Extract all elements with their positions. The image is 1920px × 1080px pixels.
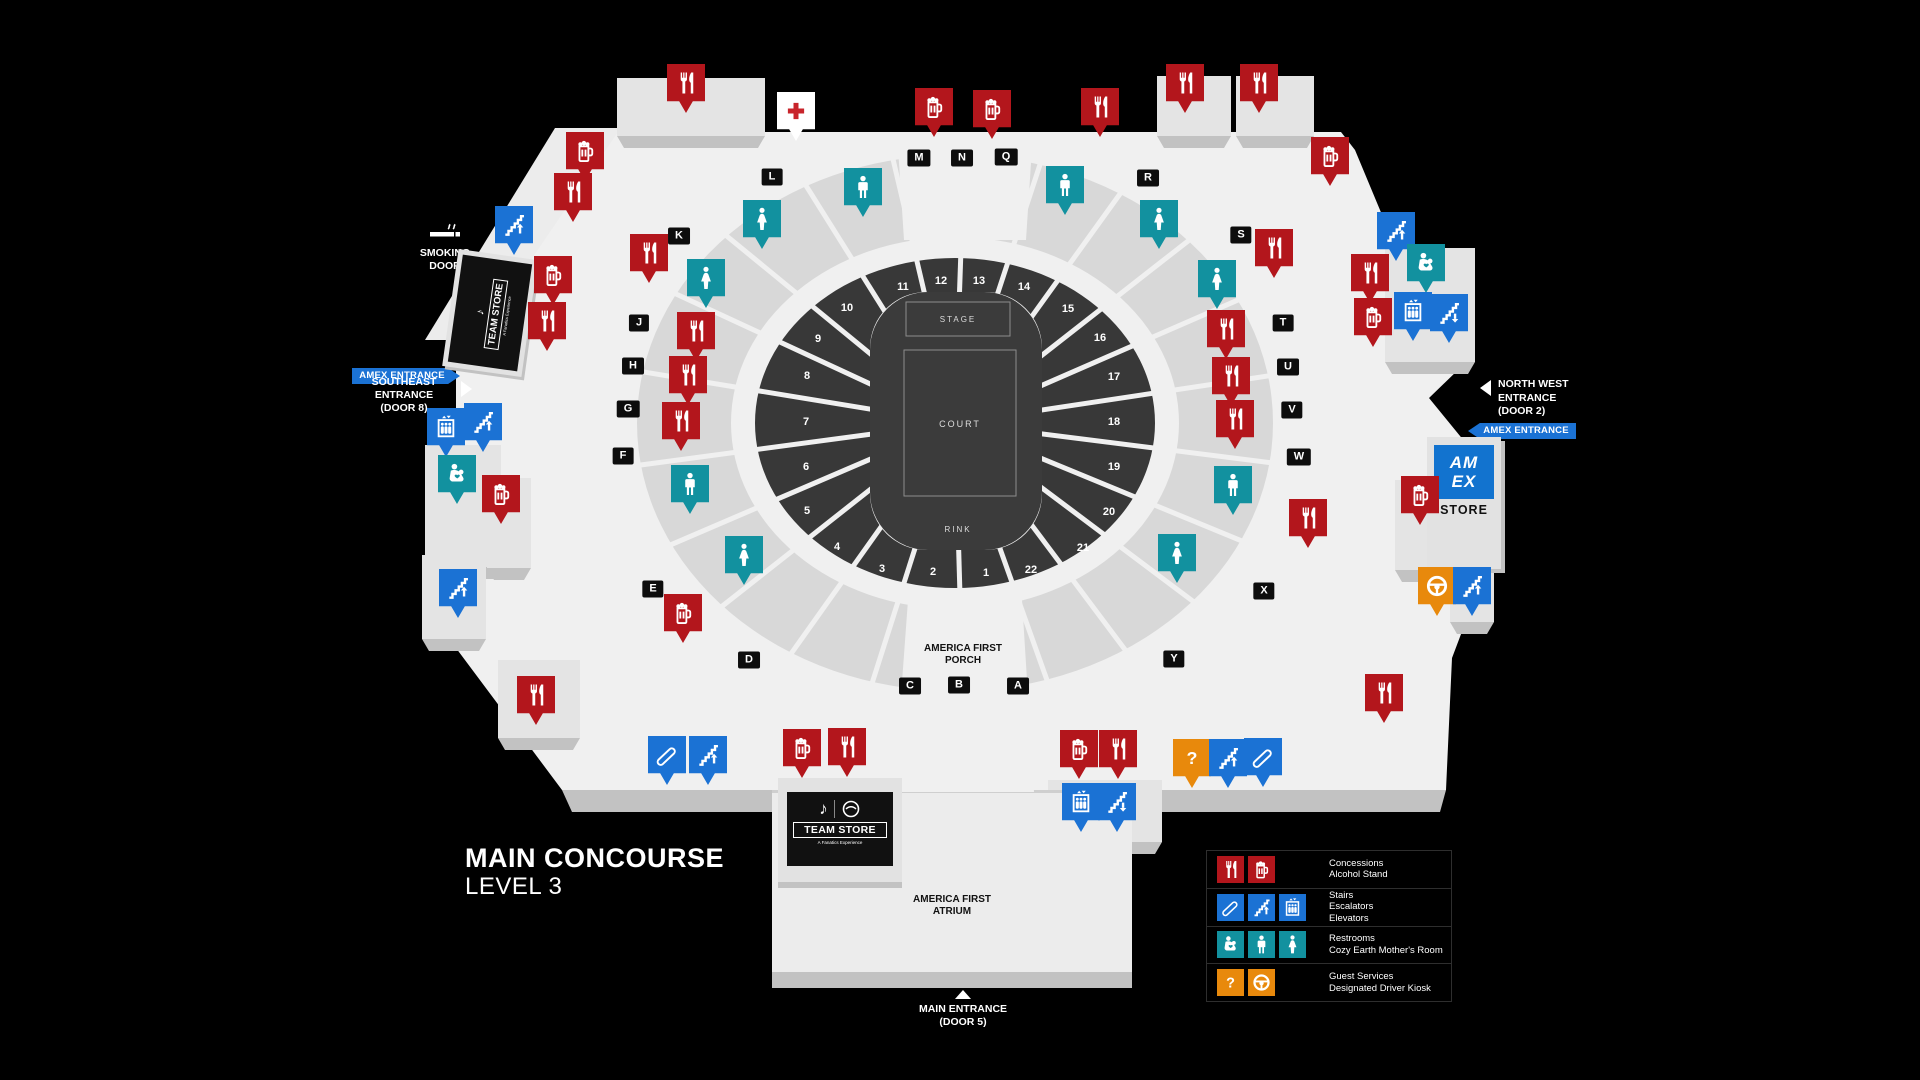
elevator-icon — [1400, 298, 1426, 324]
question-pin: ? — [1173, 739, 1211, 788]
beer-pin — [1354, 298, 1392, 347]
concourse-letter-A: A — [1007, 678, 1029, 695]
legend-row: ConcessionsAlcohol Stand — [1207, 851, 1451, 888]
fork-pin — [667, 64, 705, 113]
man-pin — [844, 168, 882, 217]
northwest-line2: ENTRANCE — [1498, 392, 1569, 406]
elevator-pin — [1062, 783, 1100, 832]
stairs-up-icon — [470, 409, 496, 435]
america-first-porch-label: AMERICA FIRST PORCH — [924, 643, 1002, 667]
page-title: MAIN CONCOURSE LEVEL 3 — [465, 843, 724, 900]
team-store-south: ♪ TEAM STORE A Fanatics Experience — [778, 778, 902, 882]
title-line2: LEVEL 3 — [465, 873, 724, 900]
beer-pin — [1311, 137, 1349, 186]
driver-pin — [1418, 567, 1456, 616]
fork-pin — [828, 728, 866, 777]
jazz-note-icon: ♪ — [819, 799, 828, 819]
fork-icon — [1105, 736, 1131, 762]
legend-row: RestroomsCozy Earth Mother's Room — [1207, 926, 1451, 964]
stairs-down-icon — [1436, 300, 1462, 326]
question-icon: ? — [1179, 745, 1205, 771]
concourse-letter-W: W — [1287, 449, 1311, 466]
fork-icon — [636, 240, 662, 266]
woman-pin — [743, 200, 781, 249]
fork-pin — [1351, 254, 1389, 303]
concourse-letter-D: D — [738, 652, 760, 669]
southeast-line2: ENTRANCE — [352, 389, 456, 402]
elevator-pin — [427, 408, 465, 457]
fork-pin — [1255, 229, 1293, 278]
stairs-up-pin — [495, 206, 533, 255]
fork-icon — [673, 70, 699, 96]
stairs-up-pin — [1209, 739, 1247, 788]
title-line1: MAIN CONCOURSE — [465, 843, 724, 873]
woman-icon — [749, 206, 775, 232]
beer-pin — [915, 88, 953, 137]
northwest-entrance: NORTH WEST ENTRANCE (DOOR 2) — [1480, 378, 1569, 419]
fork-pin — [1289, 499, 1327, 548]
stairs-up-icon — [1459, 573, 1485, 599]
man-pin — [1214, 466, 1252, 515]
fork-pin — [1207, 310, 1245, 359]
team-store-name: TEAM STORE — [793, 822, 887, 838]
beer-icon — [1066, 736, 1092, 762]
woman-pin — [687, 259, 725, 308]
beer-icon — [1360, 304, 1386, 330]
elevator-pin — [1394, 292, 1432, 341]
fork-icon — [1218, 363, 1244, 389]
stairs-up-pin — [464, 403, 502, 452]
map-overlay: SMOKING DOOR AMEX ENTRANCE SOUTHEAST ENT… — [0, 0, 1920, 1080]
mother-icon — [1217, 931, 1244, 958]
stairs-up-icon — [1248, 894, 1275, 921]
fork-icon — [1172, 70, 1198, 96]
concourse-letter-Q: Q — [995, 149, 1018, 166]
team-store-north: ♪ TEAM STORE A Fanatics Experience — [442, 249, 538, 377]
concourse-letter-E: E — [642, 581, 663, 598]
concourse-letter-Y: Y — [1163, 651, 1184, 668]
main-entrance-line2: (DOOR 5) — [905, 1016, 1021, 1029]
woman-icon — [1146, 206, 1172, 232]
stairs-up-icon — [1215, 745, 1241, 771]
elevator-icon — [433, 414, 459, 440]
cigarette-icon — [428, 218, 462, 242]
firstaid-icon — [783, 98, 809, 124]
fork-icon — [683, 318, 709, 344]
woman-pin — [1198, 260, 1236, 309]
fork-pin — [528, 302, 566, 351]
fork-pin — [677, 312, 715, 361]
stairs-up-icon — [445, 575, 471, 601]
woman-icon — [693, 265, 719, 291]
fork-pin — [662, 402, 700, 451]
beer-pin — [482, 475, 520, 524]
fork-icon — [1213, 316, 1239, 342]
fork-pin — [517, 676, 555, 725]
beer-icon — [921, 94, 947, 120]
fork-icon — [1087, 94, 1113, 120]
concourse-letter-C: C — [899, 678, 921, 695]
beer-icon — [1317, 143, 1343, 169]
legend-row: StairsEscalatorsElevators — [1207, 888, 1451, 926]
elevator-icon — [1279, 894, 1306, 921]
mother-icon — [444, 461, 470, 487]
main-entrance-line1: MAIN ENTRANCE — [905, 1003, 1021, 1016]
fork-icon — [1371, 680, 1397, 706]
beer-pin — [1060, 730, 1098, 779]
fork-icon — [1295, 505, 1321, 531]
woman-icon — [1279, 931, 1306, 958]
fork-pin — [630, 234, 668, 283]
concourse-letter-U: U — [1277, 359, 1299, 376]
driver-icon — [1248, 969, 1275, 996]
america-first-atrium-label: AMERICA FIRST ATRIUM — [913, 894, 991, 918]
concourse-letter-R: R — [1137, 170, 1159, 187]
fork-icon — [1246, 70, 1272, 96]
escalator-pin — [648, 736, 686, 785]
man-pin — [671, 465, 709, 514]
fork-pin — [1212, 357, 1250, 406]
beer-icon — [1407, 482, 1433, 508]
concourse-letter-X: X — [1253, 583, 1274, 600]
escalator-pin — [1244, 738, 1282, 787]
fork-pin — [1216, 400, 1254, 449]
escalator-icon — [1217, 894, 1244, 921]
concourse-letter-L: L — [762, 169, 783, 186]
man-icon — [850, 174, 876, 200]
concourse-letter-F: F — [613, 448, 634, 465]
fork-pin — [1365, 674, 1403, 723]
woman-pin — [725, 536, 763, 585]
beer-pin — [783, 729, 821, 778]
concourse-letter-K: K — [668, 228, 690, 245]
team-emblem-icon — [841, 799, 861, 819]
main-entrance-label: MAIN ENTRANCE (DOOR 5) — [905, 990, 1021, 1029]
northwest-line3: (DOOR 2) — [1498, 405, 1569, 419]
fork-icon — [1222, 406, 1248, 432]
woman-pin — [1158, 534, 1196, 583]
concourse-letter-S: S — [1230, 227, 1251, 244]
southeast-entrance: AMEX ENTRANCE SOUTHEAST ENTRANCE (DOOR 8… — [352, 368, 456, 415]
team-store-sub: A Fanatics Experience — [793, 840, 887, 845]
svg-text:?: ? — [1226, 975, 1235, 991]
fork-pin — [554, 173, 592, 222]
legend-row: ?Guest ServicesDesignated Driver Kiosk — [1207, 963, 1451, 1001]
beer-pin — [534, 256, 572, 305]
fork-icon — [560, 179, 586, 205]
amex-logo: AM EX — [1434, 445, 1494, 499]
man-icon — [1248, 931, 1275, 958]
southeast-line1: SOUTHEAST — [352, 376, 456, 389]
beer-icon — [540, 262, 566, 288]
stairs-up-pin — [689, 736, 727, 785]
concourse-letter-B: B — [948, 677, 970, 694]
legend-row-text: ConcessionsAlcohol Stand — [1329, 858, 1388, 881]
southeast-arrow-icon — [461, 381, 472, 397]
fork-pin — [1240, 64, 1278, 113]
jazz-note-icon: ♪ — [474, 308, 487, 315]
question-icon: ? — [1217, 969, 1244, 996]
man-icon — [1052, 172, 1078, 198]
map-legend: ConcessionsAlcohol StandStairsEscalators… — [1206, 850, 1452, 1002]
mother-pin — [438, 455, 476, 504]
stairs-up-icon — [1383, 218, 1409, 244]
man-icon — [1220, 472, 1246, 498]
concourse-letter-M: M — [907, 150, 930, 167]
driver-icon — [1424, 573, 1450, 599]
woman-icon — [1204, 266, 1230, 292]
fork-icon — [1357, 260, 1383, 286]
stairs-up-icon — [501, 212, 527, 238]
stairs-down-icon — [1104, 789, 1130, 815]
elevator-icon — [1068, 789, 1094, 815]
woman-pin — [1140, 200, 1178, 249]
stairs-down-pin — [1430, 294, 1468, 343]
fork-pin — [1099, 730, 1137, 779]
escalator-icon — [1250, 744, 1276, 770]
fork-pin — [669, 356, 707, 405]
svg-text:?: ? — [1187, 748, 1198, 768]
legend-row-text: StairsEscalatorsElevators — [1329, 890, 1373, 925]
fork-icon — [1217, 856, 1244, 883]
main-entrance-arrow-icon — [955, 990, 971, 999]
legend-row-text: RestroomsCozy Earth Mother's Room — [1329, 933, 1443, 956]
fork-icon — [534, 308, 560, 334]
fork-icon — [675, 362, 701, 388]
woman-icon — [731, 542, 757, 568]
fork-icon — [668, 408, 694, 434]
fork-icon — [834, 734, 860, 760]
concourse-letter-N: N — [951, 150, 973, 167]
beer-pin — [973, 90, 1011, 139]
venue-map-page: STAGECOURTRINK12345678910111213141516171… — [0, 0, 1920, 1080]
man-icon — [677, 471, 703, 497]
beer-icon — [979, 96, 1005, 122]
fork-pin — [1081, 88, 1119, 137]
concourse-letter-T: T — [1273, 315, 1294, 332]
beer-icon — [488, 481, 514, 507]
stairs-up-pin — [439, 569, 477, 618]
concourse-letter-H: H — [622, 358, 644, 375]
northwest-line1: NORTH WEST — [1498, 378, 1569, 392]
concourse-letter-J: J — [629, 315, 649, 332]
northwest-arrow-icon — [1480, 380, 1491, 396]
stairs-up-icon — [695, 742, 721, 768]
beer-icon — [670, 600, 696, 626]
fork-icon — [523, 682, 549, 708]
concourse-letter-V: V — [1281, 402, 1302, 419]
beer-pin — [664, 594, 702, 643]
fork-pin — [1166, 64, 1204, 113]
legend-row-text: Guest ServicesDesignated Driver Kiosk — [1329, 971, 1431, 994]
firstaid-pin — [777, 92, 815, 141]
concourse-letter-G: G — [617, 401, 640, 418]
man-pin — [1046, 166, 1084, 215]
fork-icon — [1261, 235, 1287, 261]
beer-icon — [789, 735, 815, 761]
beer-icon — [572, 138, 598, 164]
stairs-down-pin — [1098, 783, 1136, 832]
stairs-up-pin — [1453, 567, 1491, 616]
mother-pin — [1407, 244, 1445, 293]
escalator-icon — [654, 742, 680, 768]
mother-icon — [1413, 250, 1439, 276]
woman-icon — [1164, 540, 1190, 566]
beer-icon — [1248, 856, 1275, 883]
